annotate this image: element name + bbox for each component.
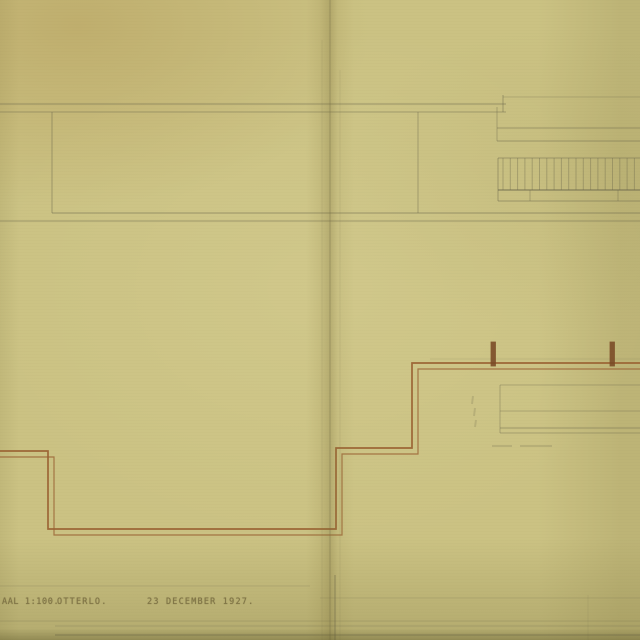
caption-row: AAL 1:100. OTTERLO. 23 DECEMBER 1927. — [0, 597, 640, 613]
caption-place: OTTERLO. — [57, 597, 108, 607]
drawing-canvas — [0, 0, 640, 640]
caption-scale: AAL 1:100. — [2, 597, 59, 607]
caption-date: 23 DECEMBER 1927. — [147, 597, 254, 607]
drawing-sheet: AAL 1:100. OTTERLO. 23 DECEMBER 1927. — [0, 0, 640, 640]
